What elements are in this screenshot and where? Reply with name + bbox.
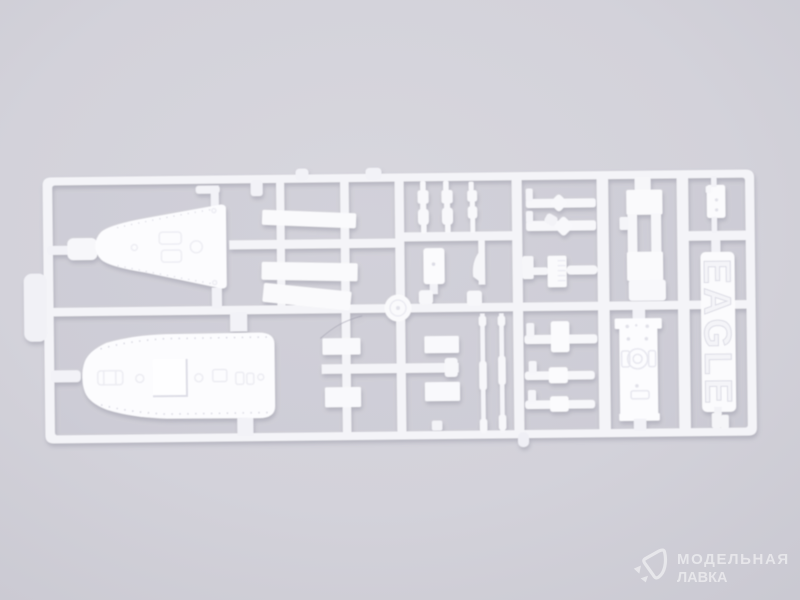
svg-text:ЛАВКА: ЛАВКА [677, 570, 728, 586]
svg-text:EAGLE: EAGLE [695, 258, 739, 407]
svg-text:МОДЕЛЬНАЯ: МОДЕЛЬНАЯ [677, 551, 790, 568]
